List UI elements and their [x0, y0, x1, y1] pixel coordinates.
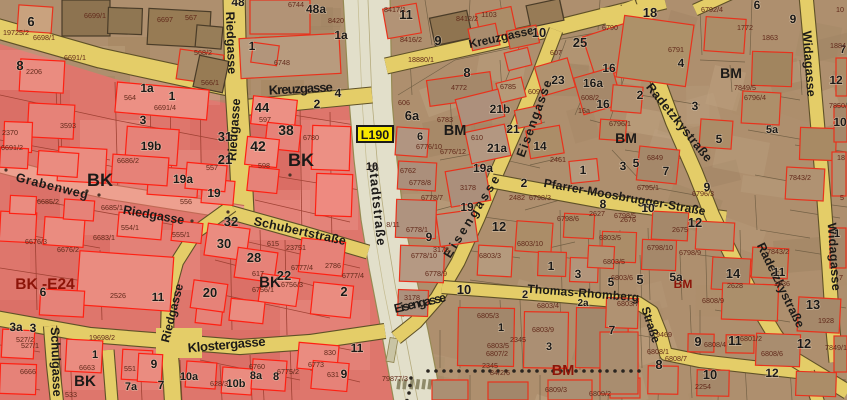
svg-text:2345: 2345 — [482, 361, 498, 370]
svg-text:527/1: 527/1 — [21, 341, 39, 350]
svg-text:555/1: 555/1 — [172, 230, 190, 239]
svg-text:6676/2: 6676/2 — [57, 245, 79, 254]
svg-text:8412/2: 8412/2 — [456, 14, 478, 23]
svg-text:6778/7: 6778/7 — [421, 193, 443, 202]
svg-text:48a: 48a — [306, 2, 326, 16]
svg-text:1: 1 — [92, 349, 98, 361]
svg-text:6756/1: 6756/1 — [252, 285, 274, 294]
svg-text:20: 20 — [203, 285, 217, 300]
svg-text:1: 1 — [834, 228, 840, 240]
svg-text:631: 631 — [327, 370, 339, 379]
svg-text:21: 21 — [506, 122, 520, 136]
svg-text:5a: 5a — [669, 270, 683, 284]
svg-text:6792/4: 6792/4 — [701, 5, 723, 14]
svg-text:9: 9 — [341, 367, 348, 381]
svg-text:28: 28 — [247, 250, 261, 265]
svg-text:6691/1: 6691/1 — [64, 53, 86, 62]
svg-text:5: 5 — [716, 132, 723, 146]
svg-text:7: 7 — [663, 164, 670, 178]
svg-text:10: 10 — [836, 5, 844, 14]
svg-text:2628: 2628 — [727, 281, 743, 290]
svg-text:6803/3: 6803/3 — [479, 251, 501, 260]
svg-text:42: 42 — [250, 138, 266, 154]
svg-text:3: 3 — [575, 267, 582, 281]
svg-text:6: 6 — [27, 14, 34, 29]
svg-text:6a: 6a — [405, 108, 420, 123]
svg-text:2482: 2482 — [509, 193, 525, 202]
svg-text:566/1: 566/1 — [201, 78, 219, 87]
svg-text:6796/3: 6796/3 — [692, 189, 714, 198]
svg-text:16a: 16a — [583, 76, 603, 90]
svg-text:10a: 10a — [180, 371, 199, 383]
svg-text:23751: 23751 — [286, 243, 306, 252]
svg-text:21a: 21a — [487, 141, 507, 155]
svg-text:6748: 6748 — [274, 58, 290, 67]
svg-text:8: 8 — [16, 58, 23, 73]
svg-text:3: 3 — [140, 113, 147, 127]
svg-text:6798/3: 6798/3 — [529, 193, 551, 202]
svg-text:2: 2 — [637, 88, 644, 102]
svg-text:12: 12 — [797, 336, 811, 351]
svg-text:2206: 2206 — [26, 67, 42, 76]
svg-text:3: 3 — [30, 321, 37, 335]
svg-text:2: 2 — [522, 289, 528, 301]
svg-text:6808/9: 6808/9 — [702, 296, 724, 305]
svg-text:1: 1 — [580, 163, 587, 177]
svg-text:21: 21 — [218, 152, 232, 167]
svg-text:6: 6 — [754, 0, 761, 12]
svg-text:3a: 3a — [9, 320, 23, 334]
svg-text:568/2: 568/2 — [194, 48, 212, 57]
svg-text:7849/1: 7849/1 — [825, 343, 847, 352]
svg-text:4: 4 — [678, 56, 685, 70]
svg-text:14: 14 — [726, 266, 741, 281]
svg-text:7: 7 — [839, 273, 843, 282]
svg-text:BM: BM — [615, 130, 637, 146]
svg-text:3178: 3178 — [404, 293, 420, 302]
svg-text:3178: 3178 — [433, 245, 449, 254]
svg-text:6777/4: 6777/4 — [342, 271, 364, 280]
svg-text:9469: 9469 — [656, 330, 672, 339]
svg-text:6801/2: 6801/2 — [740, 334, 762, 343]
svg-text:7850/1: 7850/1 — [829, 101, 847, 110]
svg-text:1a: 1a — [140, 81, 154, 95]
svg-text:1a: 1a — [334, 28, 348, 42]
svg-text:6803/7: 6803/7 — [617, 299, 639, 308]
svg-text:533: 533 — [65, 390, 77, 399]
svg-text:12: 12 — [765, 366, 779, 380]
svg-text:6785: 6785 — [500, 82, 516, 91]
svg-text:830: 830 — [324, 348, 336, 357]
svg-text:6809/2: 6809/2 — [589, 389, 611, 398]
svg-text:564: 564 — [124, 93, 136, 102]
svg-text:6775/2: 6775/2 — [277, 367, 299, 376]
svg-text:25: 25 — [573, 35, 587, 50]
svg-text:1: 1 — [548, 259, 555, 273]
svg-text:3: 3 — [620, 159, 627, 173]
svg-text:2526: 2526 — [110, 291, 126, 300]
svg-text:6796/4: 6796/4 — [744, 93, 766, 102]
svg-text:1: 1 — [249, 39, 256, 53]
svg-text:3178: 3178 — [460, 183, 476, 192]
svg-text:10: 10 — [366, 161, 378, 173]
svg-text:6790: 6790 — [602, 23, 618, 32]
svg-text:554/1: 554/1 — [121, 223, 139, 232]
svg-text:5: 5 — [840, 193, 844, 202]
svg-text:628/3: 628/3 — [210, 379, 228, 388]
svg-text:6798/6: 6798/6 — [557, 214, 579, 223]
svg-text:5: 5 — [636, 272, 643, 287]
svg-text:2461: 2461 — [550, 155, 566, 164]
svg-text:BM: BM — [552, 363, 575, 379]
svg-text:BM: BM — [444, 123, 467, 139]
svg-text:6776/10: 6776/10 — [416, 142, 442, 151]
svg-text:8416/2: 8416/2 — [400, 35, 422, 44]
svg-text:8a: 8a — [250, 370, 263, 382]
svg-text:10: 10 — [641, 201, 655, 215]
svg-text:6773: 6773 — [308, 360, 324, 369]
svg-text:7: 7 — [158, 378, 165, 392]
svg-text:12: 12 — [492, 219, 506, 234]
svg-text:6691/2: 6691/2 — [1, 143, 23, 152]
svg-text:12: 12 — [688, 215, 702, 230]
svg-text:9: 9 — [790, 12, 797, 26]
svg-text:6780: 6780 — [303, 133, 319, 142]
svg-text:5a: 5a — [766, 124, 779, 136]
svg-text:19a: 19a — [173, 172, 193, 186]
svg-text:8: 8 — [655, 357, 662, 372]
svg-text:6: 6 — [40, 285, 47, 299]
svg-text:13: 13 — [806, 297, 820, 312]
svg-text:21b: 21b — [490, 102, 511, 116]
svg-text:10: 10 — [532, 25, 546, 40]
svg-text:4772: 4772 — [451, 83, 467, 92]
svg-text:6685/2: 6685/2 — [37, 197, 59, 206]
svg-text:8417/1: 8417/1 — [384, 5, 406, 14]
svg-text:19698/2: 19698/2 — [89, 333, 115, 342]
svg-text:11: 11 — [152, 290, 165, 304]
svg-text:48: 48 — [231, 0, 245, 9]
svg-text:BK: BK — [288, 150, 314, 170]
svg-text:3593: 3593 — [60, 121, 76, 130]
svg-text:3: 3 — [546, 341, 552, 353]
svg-text:6798/5: 6798/5 — [614, 211, 636, 220]
svg-text:556: 556 — [180, 197, 192, 206]
svg-text:5: 5 — [633, 156, 640, 170]
svg-text:14: 14 — [533, 139, 547, 153]
svg-text:615: 615 — [267, 239, 279, 248]
svg-text:551: 551 — [124, 364, 136, 373]
svg-text:2675: 2675 — [672, 225, 688, 234]
svg-text:6666: 6666 — [20, 367, 36, 376]
svg-text:12: 12 — [829, 73, 843, 87]
svg-text:19a: 19a — [473, 161, 493, 175]
svg-text:18880/1: 18880/1 — [408, 55, 434, 64]
svg-text:6663: 6663 — [79, 363, 95, 372]
svg-text:6697: 6697 — [157, 15, 173, 24]
svg-text:6808/7: 6808/7 — [665, 354, 687, 363]
svg-text:6808/6: 6808/6 — [761, 349, 783, 358]
svg-text:1936: 1936 — [774, 279, 790, 288]
svg-text:7: 7 — [609, 323, 616, 337]
svg-text:44: 44 — [255, 100, 270, 115]
svg-text:23: 23 — [551, 73, 565, 87]
svg-text:598: 598 — [258, 161, 270, 170]
svg-text:6803/5: 6803/5 — [599, 233, 621, 242]
svg-text:6683/1: 6683/1 — [93, 233, 115, 242]
svg-text:2: 2 — [340, 284, 347, 299]
svg-text:19b: 19b — [141, 139, 162, 153]
svg-text:6809/3: 6809/3 — [545, 385, 567, 394]
svg-text:8420: 8420 — [328, 16, 344, 25]
svg-text:597: 597 — [259, 115, 271, 124]
svg-text:10: 10 — [457, 282, 471, 297]
svg-text:1: 1 — [498, 322, 504, 334]
svg-text:6760: 6760 — [249, 362, 265, 371]
svg-text:6676/3: 6676/3 — [25, 237, 47, 246]
svg-text:1103: 1103 — [481, 10, 496, 19]
svg-text:610: 610 — [471, 133, 483, 142]
svg-text:607: 607 — [550, 48, 562, 57]
svg-text:7a: 7a — [125, 381, 138, 393]
svg-text:6808/4: 6808/4 — [704, 340, 726, 349]
svg-text:6803/4: 6803/4 — [537, 301, 559, 310]
svg-text:6778/1: 6778/1 — [406, 225, 428, 234]
svg-text:16a: 16a — [578, 106, 590, 115]
svg-text:6798/10: 6798/10 — [647, 243, 673, 252]
svg-text:9: 9 — [694, 334, 701, 349]
svg-text:606: 606 — [398, 98, 410, 107]
svg-text:79877/3: 79877/3 — [382, 374, 408, 383]
svg-text:6805/3: 6805/3 — [477, 311, 499, 320]
svg-text:9: 9 — [434, 33, 441, 48]
svg-text:11: 11 — [351, 341, 364, 355]
svg-text:8/11: 8/11 — [386, 220, 399, 229]
svg-text:16: 16 — [602, 61, 616, 75]
svg-text:609: 609 — [528, 87, 540, 96]
svg-text:9: 9 — [151, 357, 158, 371]
svg-text:557: 557 — [206, 163, 218, 172]
svg-text:Schulgasse: Schulgasse — [48, 327, 64, 397]
svg-text:10b: 10b — [227, 378, 246, 390]
svg-text:BK: BK — [74, 373, 96, 390]
svg-text:2: 2 — [521, 176, 528, 190]
svg-text:38: 38 — [278, 122, 294, 138]
svg-text:6803/6: 6803/6 — [611, 273, 633, 282]
svg-text:617: 617 — [252, 269, 264, 278]
svg-text:BM: BM — [720, 65, 742, 81]
svg-text:2786: 2786 — [325, 261, 341, 270]
svg-text:Riedgasse: Riedgasse — [223, 11, 239, 74]
svg-text:6803/10: 6803/10 — [517, 239, 543, 248]
svg-text:6803/5: 6803/5 — [603, 257, 625, 266]
svg-text:2254: 2254 — [695, 382, 711, 391]
svg-text:10: 10 — [833, 115, 847, 129]
svg-text:6777/4: 6777/4 — [291, 263, 313, 272]
svg-text:2627: 2627 — [589, 209, 605, 218]
svg-text:7843/2: 7843/2 — [789, 173, 811, 182]
svg-text:6699/1: 6699/1 — [84, 11, 106, 20]
svg-text:6686/2: 6686/2 — [117, 156, 139, 165]
svg-text:1772: 1772 — [737, 23, 753, 32]
svg-text:BK: BK — [87, 170, 113, 190]
svg-text:8: 8 — [463, 65, 470, 80]
svg-text:6698/1: 6698/1 — [33, 33, 55, 42]
svg-text:6798/9: 6798/9 — [679, 248, 701, 257]
svg-text:6691/4: 6691/4 — [154, 103, 176, 112]
svg-text:11: 11 — [773, 265, 786, 279]
svg-text:6849: 6849 — [647, 153, 663, 162]
svg-text:567: 567 — [185, 13, 197, 22]
svg-text:19: 19 — [207, 186, 221, 200]
svg-text:6762: 6762 — [400, 166, 416, 175]
svg-text:1884: 1884 — [830, 41, 846, 50]
svg-text:1863: 1863 — [762, 33, 778, 42]
svg-text:7849/5: 7849/5 — [734, 83, 756, 92]
svg-text:30: 30 — [217, 236, 231, 251]
svg-text:6796/1: 6796/1 — [609, 119, 631, 128]
svg-text:32: 32 — [224, 214, 238, 229]
svg-text:3: 3 — [692, 99, 699, 113]
svg-text:6776/12: 6776/12 — [440, 147, 466, 156]
svg-text:6778/9: 6778/9 — [425, 269, 447, 278]
svg-text:L190: L190 — [361, 128, 390, 142]
svg-text:2345: 2345 — [510, 335, 526, 344]
svg-text:4: 4 — [335, 86, 342, 100]
svg-text:608/2: 608/2 — [581, 93, 599, 102]
svg-text:7843/2: 7843/2 — [767, 247, 789, 256]
svg-text:10: 10 — [703, 367, 717, 382]
svg-text:19725/2: 19725/2 — [3, 28, 29, 37]
svg-text:6778/8: 6778/8 — [409, 178, 431, 187]
svg-text:2a: 2a — [577, 298, 589, 309]
svg-text:6685/1: 6685/1 — [101, 203, 123, 212]
svg-text:19: 19 — [460, 200, 474, 214]
svg-text:2370: 2370 — [2, 128, 18, 137]
svg-text:1: 1 — [169, 89, 176, 103]
svg-text:18: 18 — [837, 153, 845, 162]
svg-text:6803/9: 6803/9 — [532, 325, 554, 334]
svg-text:6756/3: 6756/3 — [281, 280, 303, 289]
svg-text:6791: 6791 — [668, 45, 684, 54]
svg-text:6807/2: 6807/2 — [486, 349, 508, 358]
svg-text:1928: 1928 — [818, 316, 834, 325]
svg-text:6783: 6783 — [437, 115, 453, 124]
svg-text:6744: 6744 — [288, 0, 304, 9]
svg-text:6795/1: 6795/1 — [637, 183, 659, 192]
svg-text:2: 2 — [314, 97, 321, 111]
svg-text:18: 18 — [643, 5, 657, 20]
svg-text:31: 31 — [218, 129, 232, 144]
